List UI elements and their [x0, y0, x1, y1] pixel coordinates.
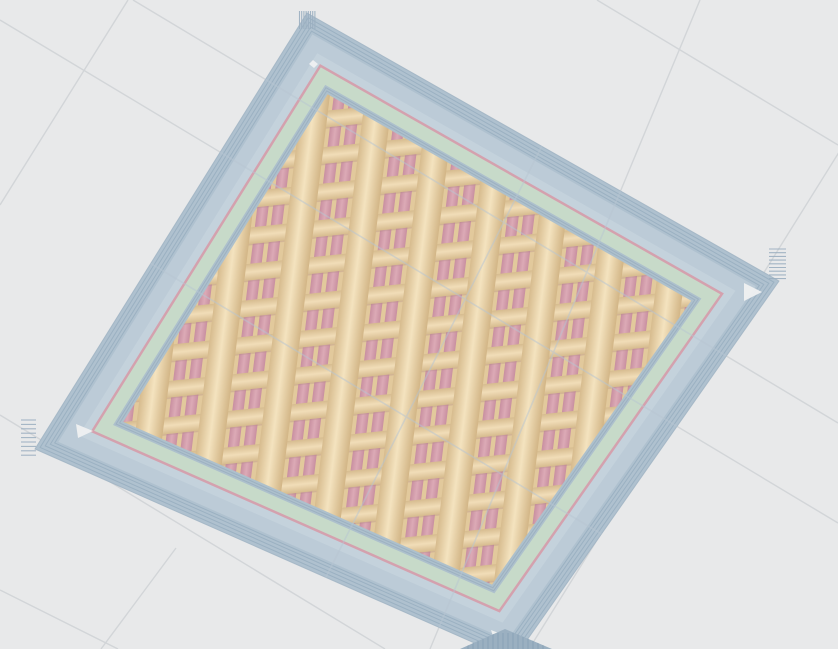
viewport-3d-svg[interactable]: [0, 0, 838, 649]
slicer-viewport[interactable]: [0, 0, 838, 649]
